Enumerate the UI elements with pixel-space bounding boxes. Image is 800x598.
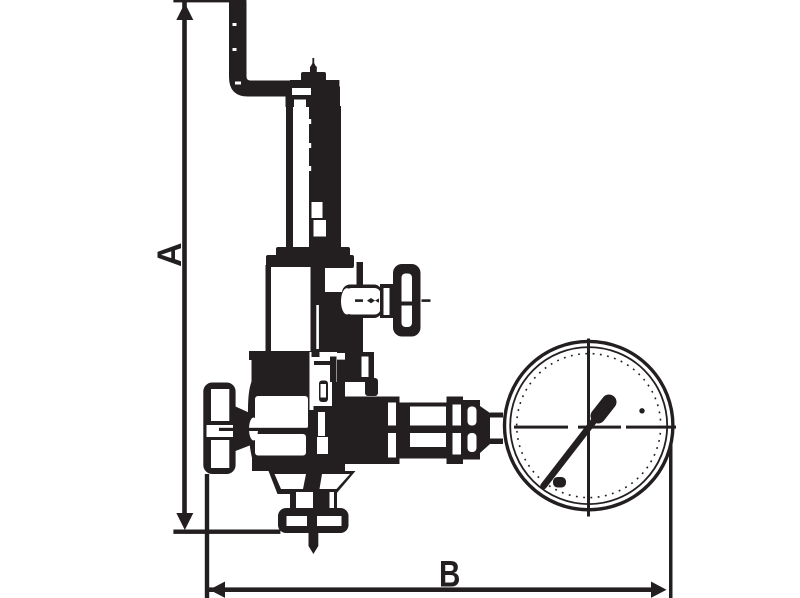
svg-text:B: B <box>439 554 460 595</box>
svg-text:A: A <box>151 242 189 267</box>
